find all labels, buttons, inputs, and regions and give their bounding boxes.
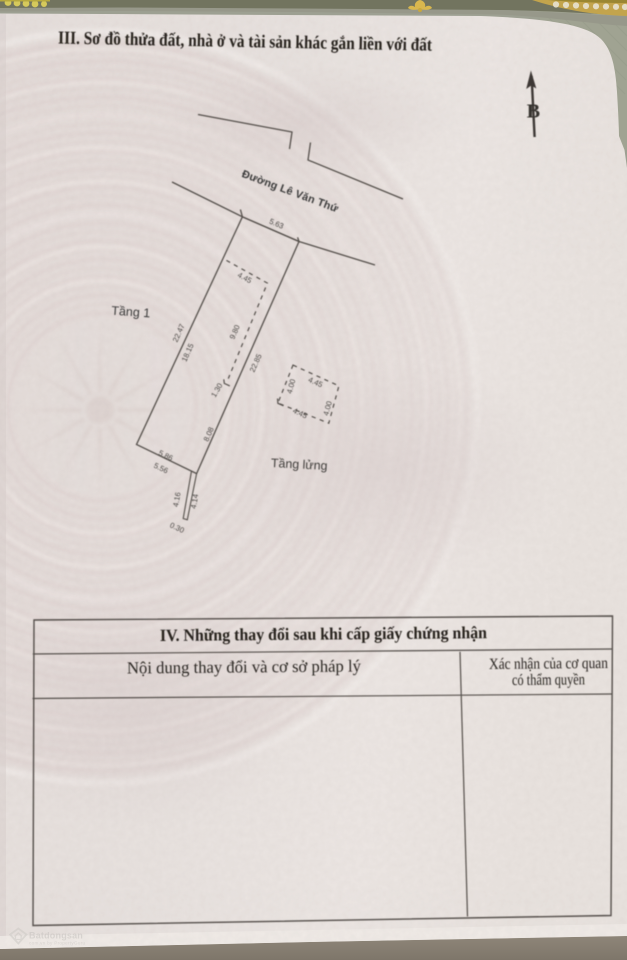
- svg-text:Xác nhận của cơ quan: Xác nhận của cơ quan: [489, 655, 608, 673]
- svg-text:B: B: [527, 101, 540, 123]
- svg-text:IV. Những thay đổi sau khi cấp: IV. Những thay đổi sau khi cấp giấy chứn…: [160, 623, 488, 645]
- svg-text:Nội dung thay đổi và cơ sở phá: Nội dung thay đổi và cơ sở pháp lý: [127, 656, 362, 677]
- svg-text:Batdongsan: Batdongsan: [29, 931, 83, 941]
- svg-text:Tầng 1: Tầng 1: [111, 304, 151, 321]
- svg-text:Tầng lửng: Tầng lửng: [271, 456, 328, 473]
- svg-text:com.vn by PropertyGuru: com.vn by PropertyGuru: [29, 941, 86, 946]
- svg-text:có thẩm quyền: có thẩm quyền: [512, 671, 585, 689]
